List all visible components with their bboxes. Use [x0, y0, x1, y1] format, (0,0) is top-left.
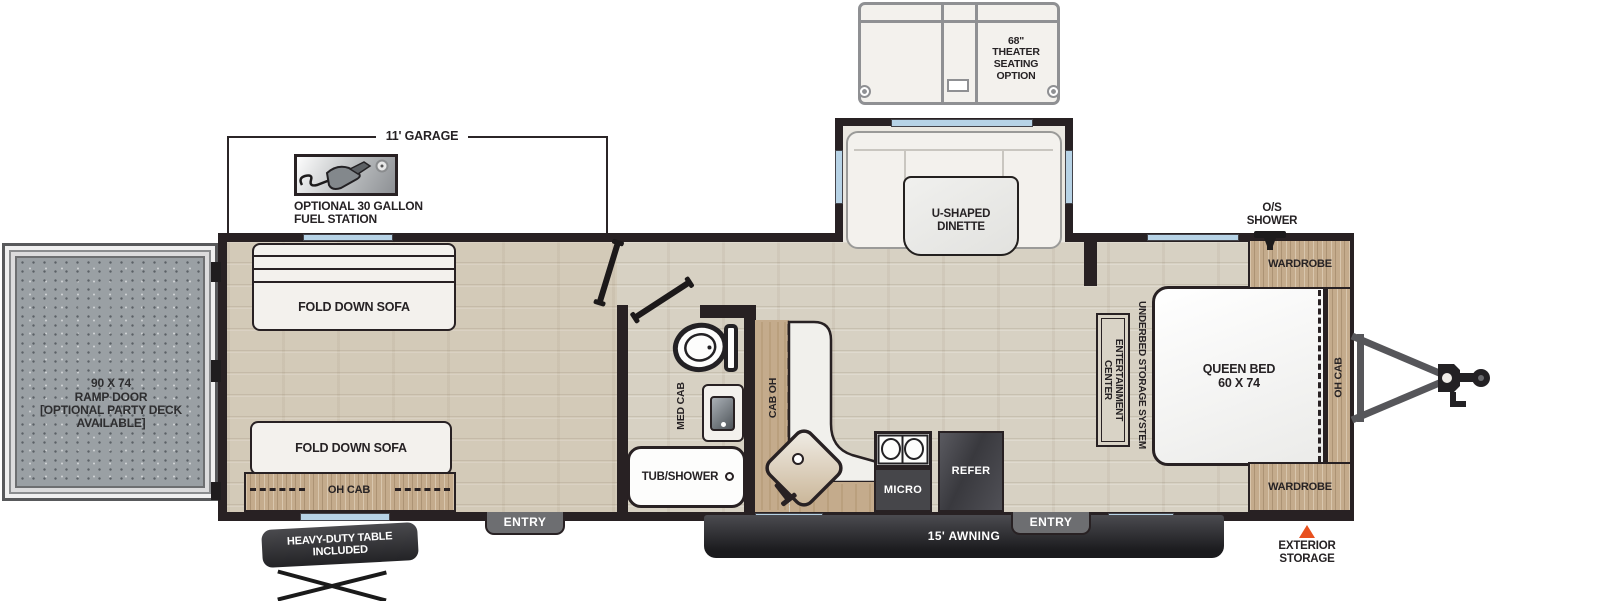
- refrigerator-label: REFER: [940, 433, 1002, 510]
- wardrobe-bottom-label: WARDROBE: [1250, 464, 1350, 510]
- toilet-fixture-icon: [668, 316, 744, 378]
- fuel-station-box: [294, 154, 398, 196]
- awning: 15' AWNING: [704, 515, 1224, 558]
- entertainment-center-label: ENTERTAINMENT CENTER: [1099, 313, 1127, 447]
- sink-drain: [721, 422, 726, 427]
- garage-bottom-window: [300, 513, 390, 521]
- ramp-door: 90 X 74 RAMP DOOR [OPTIONAL PARTY DECK A…: [2, 243, 218, 501]
- tub-shower-label: TUB/SHOWER: [634, 449, 726, 505]
- hitch-tongue-icon: [1350, 318, 1498, 438]
- queen-bed: QUEEN BED 60 X 74: [1152, 286, 1326, 466]
- ramp-hinge-bottom: [211, 482, 221, 500]
- garage-dim-line-left: [228, 136, 376, 138]
- awning-label: 15' AWNING: [704, 515, 1224, 558]
- garage-oh-cab-label: OH CAB: [306, 480, 392, 500]
- underbed-storage-label: UNDERBED STORAGE SYSTEM: [1133, 296, 1149, 454]
- dinette-wall-stub: [1084, 242, 1097, 286]
- theater-seating-label: 68" THEATER SEATING OPTION: [977, 21, 1055, 97]
- oh-cab-dash-left: [250, 488, 305, 491]
- sofa-fold-line: [254, 255, 454, 257]
- sofa-fold-line: [254, 268, 454, 270]
- bed-oh-cab-dash: [1318, 290, 1321, 462]
- refrigerator: REFER: [938, 431, 1004, 512]
- theater-seating-option: 68" THEATER SEATING OPTION: [858, 2, 1060, 105]
- entry-right-label: ENTRY: [1013, 512, 1089, 533]
- cooktop-burners-icon: [877, 434, 929, 465]
- bathroom-sink: [702, 384, 744, 442]
- cooktop: [874, 431, 932, 468]
- microwave: MICRO: [874, 468, 932, 512]
- fold-down-sofa-bottom-label: FOLD DOWN SOFA: [252, 423, 450, 473]
- ramp-hinge-top: [211, 262, 221, 282]
- garage-dim-line-right: [468, 136, 608, 138]
- garage-dim-tick-right: [606, 136, 608, 242]
- entry-left-label: ENTRY: [487, 512, 563, 533]
- theater-console-left-line: [941, 5, 944, 102]
- sink-fixture-icon: [710, 396, 735, 431]
- bench-seam-horizontal: [854, 149, 1053, 151]
- wardrobe-bottom: WARDROBE: [1248, 462, 1352, 512]
- garage-top-window: [303, 234, 393, 241]
- dinette-table: U-SHAPED DINETTE: [903, 176, 1019, 256]
- queen-bed-label: QUEEN BED 60 X 74: [1155, 289, 1323, 463]
- heavy-duty-table: HEAVY-DUTY TABLE INCLUDED: [261, 522, 419, 568]
- entry-door-left: ENTRY: [485, 512, 565, 535]
- fold-down-sofa-top: FOLD DOWN SOFA: [252, 243, 456, 331]
- ramp-door-label: 90 X 74 RAMP DOOR [OPTIONAL PARTY DECK A…: [13, 368, 209, 440]
- garage-dim-tick-left: [227, 136, 229, 233]
- ramp-hinge-middle: [211, 360, 221, 382]
- bedroom-top-window: [1147, 234, 1239, 241]
- oh-cab-dash-right: [395, 488, 450, 491]
- tub-shower: TUB/SHOWER: [627, 446, 746, 508]
- dinette-top-window: [891, 119, 1033, 127]
- sofa-fold-line: [254, 281, 454, 283]
- med-cab-label: MED CAB: [674, 376, 690, 436]
- os-shower-label: O/S SHOWER: [1240, 201, 1304, 228]
- heavy-duty-table-label: HEAVY-DUTY TABLE INCLUDED: [261, 522, 419, 568]
- dinette-left-window: [835, 150, 843, 204]
- garage-dim-label: 11' GARAGE: [374, 128, 470, 144]
- exterior-storage-triangle-icon: [1299, 525, 1315, 538]
- theater-cupholder: [947, 79, 969, 92]
- tub-drain: [725, 472, 734, 481]
- entry-door-right: ENTRY: [1011, 512, 1091, 535]
- fuel-station-label: OPTIONAL 30 GALLON FUEL STATION: [294, 199, 446, 227]
- bed-oh-cab-label: OH CAB: [1332, 349, 1347, 407]
- exterior-storage-label: EXTERIOR STORAGE: [1260, 540, 1354, 566]
- garage-oh-cab: OH CAB: [244, 472, 456, 512]
- theater-foot-left-icon: [858, 85, 871, 98]
- kitchen-cab-oh-label: CAB OH: [766, 370, 782, 426]
- dinette-label: U-SHAPED DINETTE: [905, 204, 1017, 238]
- microwave-label: MICRO: [876, 470, 930, 510]
- fold-down-sofa-bottom: FOLD DOWN SOFA: [250, 421, 452, 475]
- shower-head-icon: [1253, 230, 1289, 252]
- dinette-right-window: [1065, 150, 1073, 204]
- fold-down-sofa-top-label: FOLD DOWN SOFA: [254, 287, 454, 327]
- fuel-pump-icon: [297, 157, 395, 193]
- floorplan-canvas: 68" THEATER SEATING OPTION 11' GARAGE OP…: [0, 0, 1600, 601]
